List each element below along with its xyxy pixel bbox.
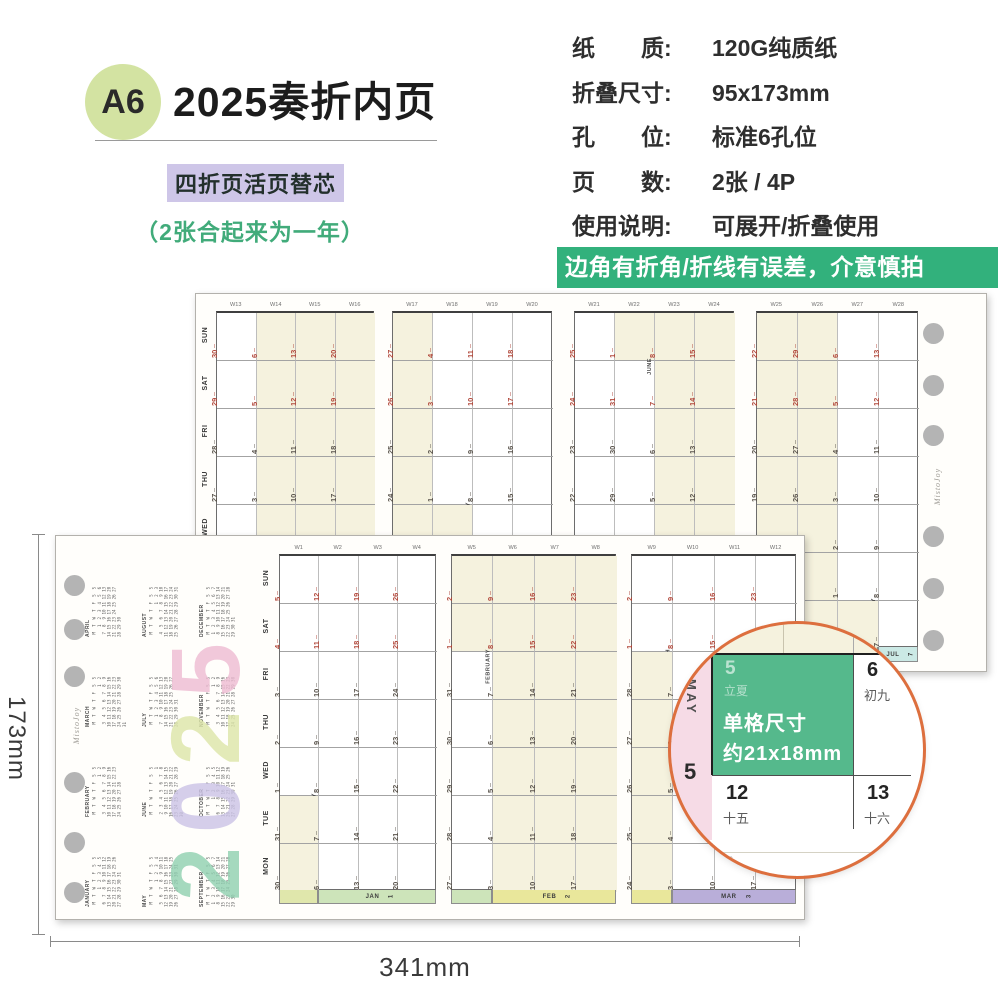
calendar-cell: 26 (398, 556, 437, 604)
week-number-header: W2 (326, 544, 350, 550)
cell-date: 12 (726, 782, 748, 805)
week-number-header: W26 (804, 301, 829, 307)
week-number-header: W22 (622, 301, 647, 307)
week-number-header: W20 (520, 301, 545, 307)
cell-date: 3 (486, 880, 495, 890)
cell-date: 18 (352, 635, 361, 649)
cell-date: 12 (528, 779, 537, 793)
year-digit: 2 (157, 711, 254, 765)
calendar-cell: 20 (336, 313, 376, 361)
year-digit: 2 (157, 847, 254, 901)
week-number-header: W27 (845, 301, 870, 307)
month-band-label: MAR (722, 893, 737, 900)
cell-date: 8 (872, 588, 881, 598)
cell-date: 27 (791, 440, 800, 454)
week-number-header: W10 (680, 544, 706, 550)
mini-month-name: MAY (142, 895, 148, 907)
cell-lunar: 十六 (864, 808, 890, 827)
week-number-header: W6 (500, 544, 526, 550)
cell-date: 25 (568, 344, 577, 358)
cell-date: 31 (608, 392, 617, 406)
mini-month: APRIL M T W T F S S 1 2 3 4 5 6 7 8 9 10… (85, 551, 140, 637)
cell-date: 26 (625, 779, 634, 793)
calendar-cell: 11 (879, 409, 920, 457)
week-number-header: W13 (224, 301, 248, 307)
cell-date: 22 (568, 488, 577, 502)
calendar-cell: 12 (879, 361, 920, 409)
cell-date: 27 (445, 876, 454, 890)
cell-date: 31 (445, 683, 454, 697)
calendar-cell: 14 (695, 361, 735, 409)
width-dim-line (50, 941, 800, 942)
width-dim-tick-right (799, 936, 800, 947)
spec-value: 标准6孔位 (712, 122, 817, 152)
spec-label: 页 数: (572, 167, 672, 197)
punch-hole (923, 578, 944, 599)
cell-date: 7 (486, 687, 495, 697)
cell-date: 30 (273, 876, 282, 890)
cell-date: 19 (352, 587, 361, 601)
cell-date: 28 (625, 683, 634, 697)
cell-date: 17 (352, 683, 361, 697)
month-band (451, 890, 492, 904)
calendar-cell: 23 (756, 556, 797, 604)
calendar-cell: 18 (336, 409, 376, 457)
cell-date: 15 (688, 344, 697, 358)
year-digits: 2025 (157, 643, 254, 901)
cell-date: 3 (250, 492, 259, 502)
cell-date: 21 (569, 683, 578, 697)
mini-month: FEBRUARY M T W T F S S 1 2 3 4 5 6 7 8 9… (85, 731, 140, 817)
calendar-cell: 21 (576, 652, 617, 700)
neighbor-date: 20 (867, 860, 874, 866)
cell-date: 14 (528, 683, 537, 697)
day-row-label: THU (263, 698, 273, 746)
magnifier-circle: 28 29 MAY 5 5 立夏 单格尺寸 约21x18mm 6 初九 12 十… (671, 624, 923, 876)
cell-date: 9 (466, 444, 475, 454)
week-number-header: W18 (440, 301, 465, 307)
cell-date: 10 (708, 876, 717, 890)
day-row-label: SUN (263, 554, 273, 602)
mini-month-grid: M T W T F S S 1 2 3 4 5 6 7 8 9 10 11 12… (92, 767, 122, 817)
cell-date: 29 (445, 779, 454, 793)
calendar-cell: 21 (398, 796, 437, 844)
cell-date: 3 (666, 880, 675, 890)
brand-logo: MistoJoy (933, 468, 942, 505)
cell-date: 16 (528, 587, 537, 601)
month-band-number: 2 (564, 895, 571, 898)
width-dim-label: 341mm (290, 952, 560, 983)
week-number-header: W25 (764, 301, 789, 307)
month-border-line (711, 655, 713, 775)
neighbor-date: 28 (721, 630, 728, 636)
cell-lunar: 十五 (723, 808, 749, 827)
cell-date: 4 (250, 444, 259, 454)
size-badge: A6 (85, 64, 161, 140)
month-band-label: FEB (542, 893, 556, 900)
cell-date: 2 (445, 591, 454, 601)
year-digit: 5 (157, 643, 254, 697)
month-band-number: 1 (387, 895, 394, 898)
product-image: A6 2025奏折内页 四折页活页替芯 （2张合起来为一年） 纸 质: 120G… (0, 0, 1000, 1000)
cell-date: 2 (831, 540, 840, 550)
week-number-header: W4 (404, 544, 428, 550)
week-number-header: W5 (459, 544, 485, 550)
cell-date: 28 (791, 392, 800, 406)
mini-month-name: MARCH (85, 706, 91, 727)
cell-date: 16 (708, 587, 717, 601)
spec-value: 2张 / 4P (712, 167, 795, 197)
punch-hole (64, 832, 85, 853)
cell-date: 23 (391, 731, 400, 745)
calendar-cell: 22 (398, 748, 437, 796)
calendar-cell: 24 (398, 652, 437, 700)
note-text: （2张合起来为一年） (80, 213, 420, 247)
cell-date: 10 (289, 488, 298, 502)
magnifier-month-number: 5 (684, 759, 696, 785)
month-band: FEB2 (492, 890, 616, 904)
week-number-header: W19 (480, 301, 505, 307)
cell-date: 29 (210, 392, 219, 406)
week-number-header: W15 (303, 301, 327, 307)
cell-date: 5 (250, 396, 259, 406)
grid-line (783, 624, 784, 654)
cell-date: 12 (289, 392, 298, 406)
week-number-header: W21 (582, 301, 607, 307)
cell-date: 24 (391, 683, 400, 697)
week-number-header: W24 (702, 301, 727, 307)
cell-date: 9 (666, 591, 675, 601)
spec-row: 孔 位: 标准6孔位 (572, 122, 1000, 152)
width-dim-tick-left (50, 936, 51, 947)
month-band: MAR3 (672, 890, 796, 904)
highlighted-cell: 5 立夏 单格尺寸 约21x18mm (713, 655, 853, 775)
cell-date: 14 (688, 392, 697, 406)
calendar-cell: 20 (398, 844, 437, 892)
cell-date: 13 (688, 440, 697, 454)
calendar-cell: 23 (576, 556, 617, 604)
mini-calendar-panel: JANUARY M T W T F S S 1 2 3 4 5 6 7 8 9 … (83, 549, 257, 913)
cell-date: 22 (391, 779, 400, 793)
calendar-cell: 17 (513, 361, 553, 409)
cell-date: 1 (273, 783, 282, 793)
cell-date: 5 (486, 783, 495, 793)
spec-value: 120G纯质纸 (712, 33, 837, 63)
cell-date: 13 (289, 344, 298, 358)
cell-date: 14 (352, 827, 361, 841)
calendar-cell: 16 (513, 409, 553, 457)
week-number-header: W17 (400, 301, 425, 307)
cell-date: 6 (250, 348, 259, 358)
mini-month-name: APRIL (85, 620, 91, 638)
punch-hole (64, 882, 85, 903)
mini-month-name: JANUARY (85, 880, 91, 907)
cell-date: 24 (386, 488, 395, 502)
calendar-cell: 19 (336, 361, 376, 409)
subtitle-highlight: 四折页活页替芯 (167, 164, 344, 202)
calendar-cell: 19 (576, 748, 617, 796)
punch-hole (923, 630, 944, 651)
calendar-cell: 17 (576, 844, 617, 892)
punch-hole (923, 425, 944, 446)
cell-date: 29 (791, 344, 800, 358)
cell-date: 13 (872, 344, 881, 358)
cell-date: 22 (750, 344, 759, 358)
mini-month-grid: M T W T F S S 1 2 3 4 5 6 7 8 9 10 11 12… (92, 587, 122, 637)
cell-date: 31 (273, 827, 282, 841)
cell-date: 1 (608, 348, 617, 358)
week-number-header: W11 (721, 544, 747, 550)
calendar-cell: 12 (695, 457, 735, 505)
cell-date: 10 (312, 683, 321, 697)
cell-date: 12 (688, 488, 697, 502)
cell-date: 8 (486, 639, 495, 649)
cell-date: 6 (831, 348, 840, 358)
mini-month-grid: M T W T F S S 1 2 3 4 5 6 7 8 9 10 11 12… (92, 677, 127, 727)
cell-date: 13 (528, 731, 537, 745)
cell-date: 22 (569, 635, 578, 649)
month-band (279, 890, 318, 904)
cell-date: 30 (608, 440, 617, 454)
neighbor-date: 19 (726, 857, 733, 863)
cell-date: 23 (749, 587, 758, 601)
day-row-label: MON (263, 842, 273, 890)
month-band-number: 3 (746, 895, 753, 898)
punch-hole (64, 772, 85, 793)
week-number-header: W12 (763, 544, 789, 550)
mini-month: AUGUST M T W T F S S 1 2 3 4 5 6 7 8 9 1… (142, 551, 197, 637)
cell-date: 3 (831, 492, 840, 502)
cell-date: 25 (625, 827, 634, 841)
height-dim-tick-bottom (32, 934, 45, 935)
cell-date: 3 (273, 687, 282, 697)
cell-date: 11 (466, 344, 475, 358)
cell-date: 20 (391, 876, 400, 890)
calendar-cell: 15 (513, 457, 553, 505)
cell-date: 26 (791, 488, 800, 502)
magnifier-top-strip (671, 624, 923, 654)
cell-date: 4 (426, 348, 435, 358)
week-number-header: W16 (342, 301, 366, 307)
cell-date: 15 (352, 779, 361, 793)
cell-date: 15 (506, 488, 515, 502)
spec-value: 95x173mm (712, 78, 830, 108)
title-divider (95, 140, 437, 141)
cell-date: 26 (386, 392, 395, 406)
calendar-cell: 13 (879, 313, 920, 361)
spec-value: 可展开/折叠使用 (712, 211, 879, 241)
cell-size-caption: 约21x18mm (723, 737, 842, 766)
calendar-cell: 18 (513, 313, 553, 361)
cell-date: 17 (569, 876, 578, 890)
cell-date: 9 (312, 735, 321, 745)
cell-date: 13 (352, 876, 361, 890)
height-dim-label: 173mm (2, 696, 30, 776)
cell-date: 11 (872, 440, 881, 454)
cell-date: 7 (312, 831, 321, 841)
cell-date: 12 (872, 392, 881, 406)
cell-date: 2 (273, 735, 282, 745)
mini-month-name: JUNE (142, 802, 148, 817)
mini-month-name: JULY (142, 713, 148, 727)
grid-line (712, 624, 713, 654)
spec-label: 折叠尺寸: (572, 78, 672, 108)
neighbor-date: 29 (864, 634, 871, 640)
punch-hole (64, 575, 85, 596)
cell-date: 5 (831, 396, 840, 406)
cell-date: 27 (625, 731, 634, 745)
year-digit: 0 (157, 779, 254, 833)
cell-date: 11 (312, 635, 321, 649)
cell-date: 20 (329, 344, 338, 358)
warning-banner: 边角有折角/折线有误差，介意慎拍 (557, 247, 998, 288)
calendar-cell: 17 (336, 457, 376, 505)
punch-hole (923, 323, 944, 344)
grid-line (712, 852, 887, 853)
week-number-header: W1 (286, 544, 310, 550)
mini-month-name: FEBRUARY (85, 785, 91, 817)
cell-date: 6 (486, 735, 495, 745)
cell-date: 10 (466, 392, 475, 406)
week-number-header: W23 (662, 301, 687, 307)
grid-line (712, 775, 911, 776)
page-title: 2025奏折内页 (173, 68, 436, 128)
cell-date: 30 (210, 344, 219, 358)
month-band (631, 890, 672, 904)
punch-hole (64, 619, 85, 640)
cell-date: 23 (568, 440, 577, 454)
calendar-cell: 23 (398, 700, 437, 748)
mini-month-name: DECEMBER (199, 604, 205, 637)
cell-date: 8 (648, 348, 657, 358)
cell-date: 12 (312, 587, 321, 601)
cell-date: 9 (872, 540, 881, 550)
calendar-cell: 8 (879, 553, 920, 601)
cell-date: 29 (608, 488, 617, 502)
grid-line (853, 655, 854, 829)
cell-date: 2 (625, 591, 634, 601)
cell-date: 10 (528, 876, 537, 890)
month-band-label: JAN (365, 893, 379, 900)
cell-date: 13 (867, 782, 889, 805)
cell-date: 21 (391, 827, 400, 841)
cell-date: 19 (569, 779, 578, 793)
cell-date: 18 (329, 440, 338, 454)
cell-date: 25 (386, 440, 395, 454)
cell-date: 20 (569, 731, 578, 745)
week-group: 54321JANUARY3130121110987619181716151413… (279, 554, 436, 890)
cell-lunar: 初九 (864, 685, 890, 704)
brand-logo: MistoJoy (72, 707, 81, 744)
week-number-header: W3 (365, 544, 389, 550)
cell-date: 25 (391, 635, 400, 649)
cell-date: 23 (569, 587, 578, 601)
cell-date: 15 (528, 635, 537, 649)
cell-date: 4 (831, 444, 840, 454)
mini-month: MARCH M T W T F S S 1 2 3 4 5 6 7 8 9 10… (85, 641, 140, 727)
punch-hole (923, 375, 944, 396)
cell-date: 24 (625, 876, 634, 890)
cell-date: 20 (750, 440, 759, 454)
punch-hole (64, 666, 85, 687)
cell-date: 8 (466, 492, 475, 502)
week-group: 21FEBRUARY313029282798765431615141312111… (451, 554, 616, 890)
cell-date: 17 (329, 488, 338, 502)
grid-line (853, 624, 854, 654)
calendar-cell: 15 (695, 313, 735, 361)
cell-date: 11 (289, 440, 298, 454)
cell-date: 2 (426, 444, 435, 454)
calendar-cell: 22 (576, 604, 617, 652)
height-dim-line (38, 535, 39, 935)
cell-date: 17 (506, 392, 515, 406)
cell-date: 1 (831, 588, 840, 598)
cell-date: 6 (312, 880, 321, 890)
cell-date: 27 (210, 488, 219, 502)
cell-size-caption: 单格尺寸 (723, 707, 807, 736)
calendar-cell: 10 (879, 457, 920, 505)
cell-date: 5 (725, 658, 736, 680)
calendar-cell: 20 (576, 700, 617, 748)
cell-date: 5 (648, 492, 657, 502)
calendar-cell: 25 (398, 604, 437, 652)
mini-month-name: AUGUST (142, 613, 148, 637)
spec-row: 使用说明: 可展开/折叠使用 (572, 211, 1000, 241)
calendar-cell: 18 (576, 796, 617, 844)
week-number-header: W14 (263, 301, 287, 307)
mini-month: DECEMBER M T W T F S S 1 2 3 4 5 6 7 8 9… (199, 551, 254, 637)
cell-date: 30 (445, 731, 454, 745)
week-number-header: W28 (885, 301, 910, 307)
cell-date: 19 (750, 488, 759, 502)
cell-date: 21 (750, 392, 759, 406)
week-number-header: W8 (583, 544, 609, 550)
magnifier-month-label: MAY (684, 679, 699, 716)
cell-date: 18 (569, 827, 578, 841)
cell-date: 1 (625, 639, 634, 649)
mini-month: JANUARY M T W T F S S 1 2 3 4 5 6 7 8 9 … (85, 821, 140, 907)
day-row-label: TUE (263, 794, 273, 842)
cell-date: 27 (386, 344, 395, 358)
cell-date: 26 (391, 587, 400, 601)
day-row-label: SAT (263, 602, 273, 650)
punch-hole (923, 526, 944, 547)
spec-row: 折叠尺寸: 95x173mm (572, 78, 1000, 108)
cell-date: 6 (867, 659, 878, 682)
cell-date: 8 (312, 783, 321, 793)
magnifier-month-band: MAY 5 (671, 655, 712, 840)
cell-lunar: 立夏 (724, 682, 748, 699)
cell-date: 6 (648, 444, 657, 454)
cell-date: 11 (528, 827, 537, 841)
day-row-label: FRI (263, 650, 273, 698)
cell-date: 10 (872, 488, 881, 502)
cell-date: 3 (426, 396, 435, 406)
cell-date: 4 (486, 831, 495, 841)
cell-date: 1 (426, 492, 435, 502)
calendar-cell: 13 (695, 409, 735, 457)
cell-date: 24 (568, 392, 577, 406)
cell-date: 28 (210, 440, 219, 454)
height-dim-tick-top (32, 534, 45, 535)
cell-date: 17 (749, 876, 758, 890)
week-number-header: W9 (639, 544, 665, 550)
spec-row: 纸 质: 120G纯质纸 (572, 33, 1000, 63)
cell-date: 1 (445, 639, 454, 649)
cell-date: 16 (352, 731, 361, 745)
cell-date: 9 (486, 591, 495, 601)
spec-label: 纸 质: (572, 33, 672, 63)
